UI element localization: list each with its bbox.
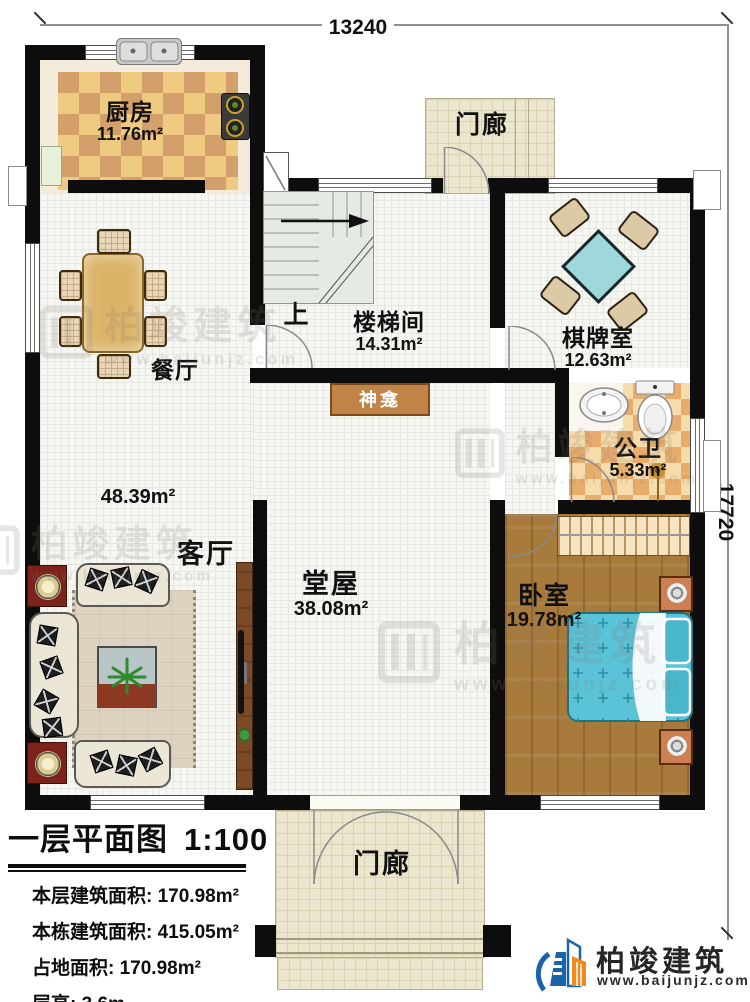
- kitchen-stove: [221, 93, 250, 140]
- label-porch-top: 门廊: [432, 112, 532, 139]
- dining-chair: [59, 316, 82, 347]
- wall: [490, 193, 505, 328]
- hall-floor-link: [253, 383, 267, 503]
- table-lamp: [35, 751, 61, 777]
- window: [25, 243, 40, 353]
- door-porch-top: [443, 147, 490, 195]
- dimension-top-label: 13240: [322, 16, 394, 40]
- label-bath: 公卫 5.33m²: [592, 436, 684, 480]
- label-living: 客厅: [166, 540, 246, 569]
- label-porch-bottom: 门廊: [328, 850, 436, 879]
- table-lamp: [35, 574, 61, 600]
- company-website: www.baijunjz.com: [597, 972, 750, 988]
- info-row-height: 层高: 3.6m: [32, 989, 268, 1002]
- label-stairwell: 楼梯间 14.31m²: [330, 310, 448, 354]
- dining-chair: [97, 229, 131, 254]
- title-underline: [8, 870, 246, 872]
- dimension-tick: [721, 12, 734, 25]
- end-table: [27, 742, 67, 784]
- sofa-pillow: [110, 566, 133, 589]
- nightstand-lamp: [667, 583, 687, 603]
- shrine-label: 神龛: [359, 390, 401, 410]
- door-side-small: [263, 152, 289, 194]
- dining-chair: [144, 270, 167, 301]
- wall: [68, 180, 205, 193]
- label-dining: 餐厅: [130, 358, 220, 383]
- wall: [555, 383, 569, 457]
- kitchen-sink: [116, 38, 182, 65]
- end-table: [27, 565, 67, 607]
- label-bedroom: 卧室 19.78m²: [494, 583, 594, 632]
- label-hall: 堂屋 38.08m²: [276, 570, 386, 621]
- porch-threshold: [310, 795, 460, 810]
- plan-title: 一层平面图: [8, 814, 168, 859]
- shrine: 神龛: [330, 383, 430, 416]
- window-sill: [8, 166, 27, 206]
- passage-floor: [505, 383, 555, 514]
- nightstand-lamp: [667, 736, 687, 756]
- dining-chair: [97, 354, 131, 379]
- plan-scale: 1:100: [184, 822, 268, 858]
- wall: [488, 178, 540, 193]
- sofa-pillow: [115, 754, 138, 777]
- porch-bottom-steps: [277, 958, 483, 990]
- floorplan-canvas: 13240 17720: [0, 0, 750, 1002]
- wall: [490, 514, 505, 795]
- drain-stem: [657, 477, 659, 501]
- porch-step-line: [276, 938, 484, 940]
- info-panel: 一层平面图 1:100 本层建筑面积: 170.98m² 本栋建筑面积: 415…: [8, 814, 268, 1002]
- toilet: [632, 380, 678, 442]
- label-stairs-up: 上: [280, 302, 312, 329]
- info-row-building-area: 本栋建筑面积: 415.05m²: [32, 917, 268, 944]
- kitchen-fridge: [41, 146, 62, 186]
- info-row-footprint: 占地面积: 170.98m²: [32, 953, 268, 980]
- window: [90, 795, 205, 810]
- window-sill: [703, 440, 721, 512]
- tv-stand: [244, 662, 247, 684]
- door-bedroom: [507, 514, 558, 558]
- dimension-tick: [34, 12, 47, 25]
- cabinet-plant: [239, 728, 250, 742]
- sofa-pillow: [36, 624, 58, 646]
- title-underline: [8, 864, 246, 868]
- sofa-pillow: [42, 717, 63, 738]
- door-stairwell: [265, 325, 313, 369]
- watermark-logo-icon: [0, 525, 20, 575]
- label-kitchen: 厨房 11.76m²: [75, 100, 185, 144]
- wardrobe: [557, 516, 690, 556]
- porch-column: [483, 925, 511, 957]
- window-sill: [693, 170, 721, 210]
- info-row-floor-area: 本层建筑面积: 170.98m²: [32, 881, 268, 908]
- dining-chair: [59, 270, 82, 301]
- porch-step-line: [276, 952, 484, 954]
- label-living-area: 48.39m²: [88, 487, 188, 509]
- bath-sink: [578, 386, 630, 424]
- label-chess: 棋牌室 12.63m²: [542, 326, 654, 370]
- dining-chair: [144, 316, 167, 347]
- dining-table: [82, 253, 144, 353]
- wall: [253, 500, 267, 795]
- coffee-table: [97, 646, 157, 708]
- window: [540, 795, 660, 810]
- nightstand: [659, 576, 693, 612]
- nightstand: [659, 729, 693, 765]
- window: [548, 178, 658, 193]
- wall: [490, 500, 505, 514]
- wardrobe-rod: [558, 534, 689, 536]
- company-logo-icon: [534, 934, 592, 994]
